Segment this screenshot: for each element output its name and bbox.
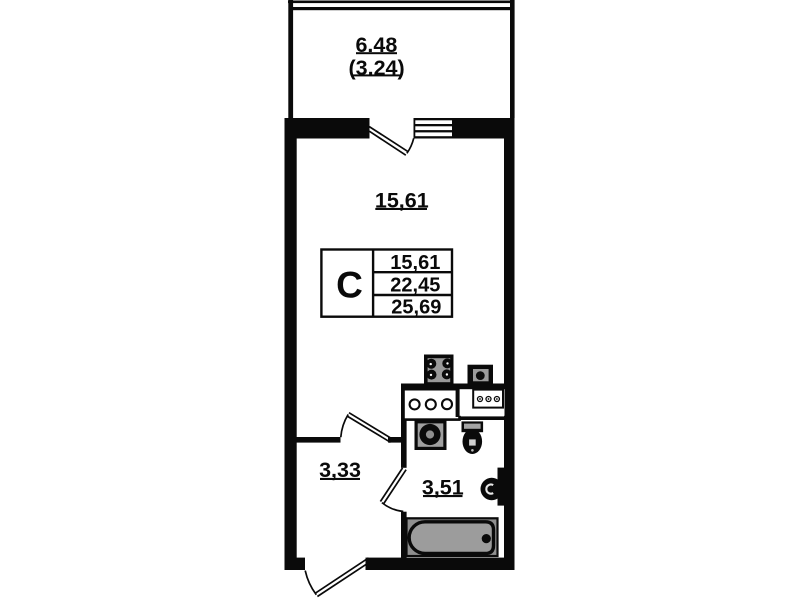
svg-text:22,45: 22,45	[390, 275, 440, 297]
svg-text:25,69: 25,69	[391, 296, 441, 318]
svg-text:С: С	[336, 264, 363, 305]
svg-text:15,61: 15,61	[390, 252, 440, 274]
